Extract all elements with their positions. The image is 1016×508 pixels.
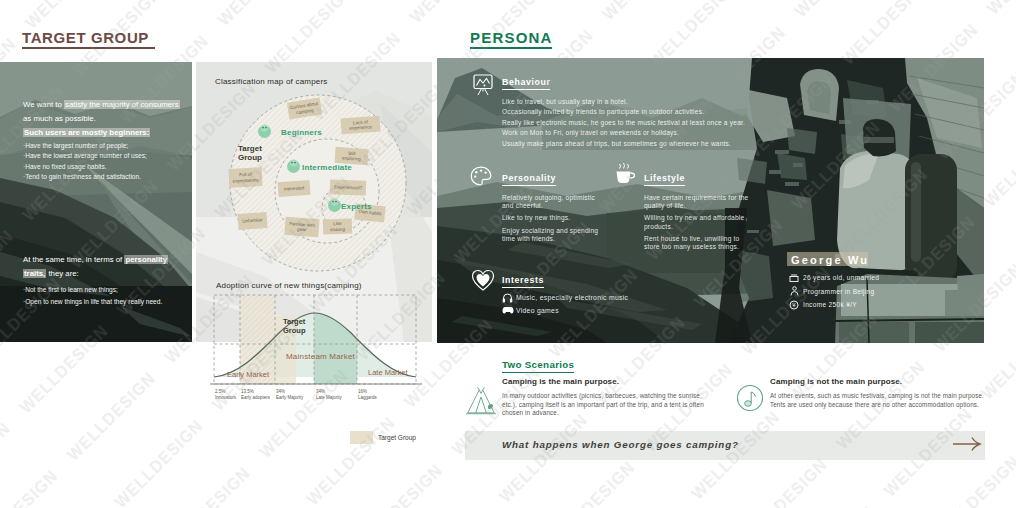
svg-text:¥: ¥ — [792, 302, 796, 308]
